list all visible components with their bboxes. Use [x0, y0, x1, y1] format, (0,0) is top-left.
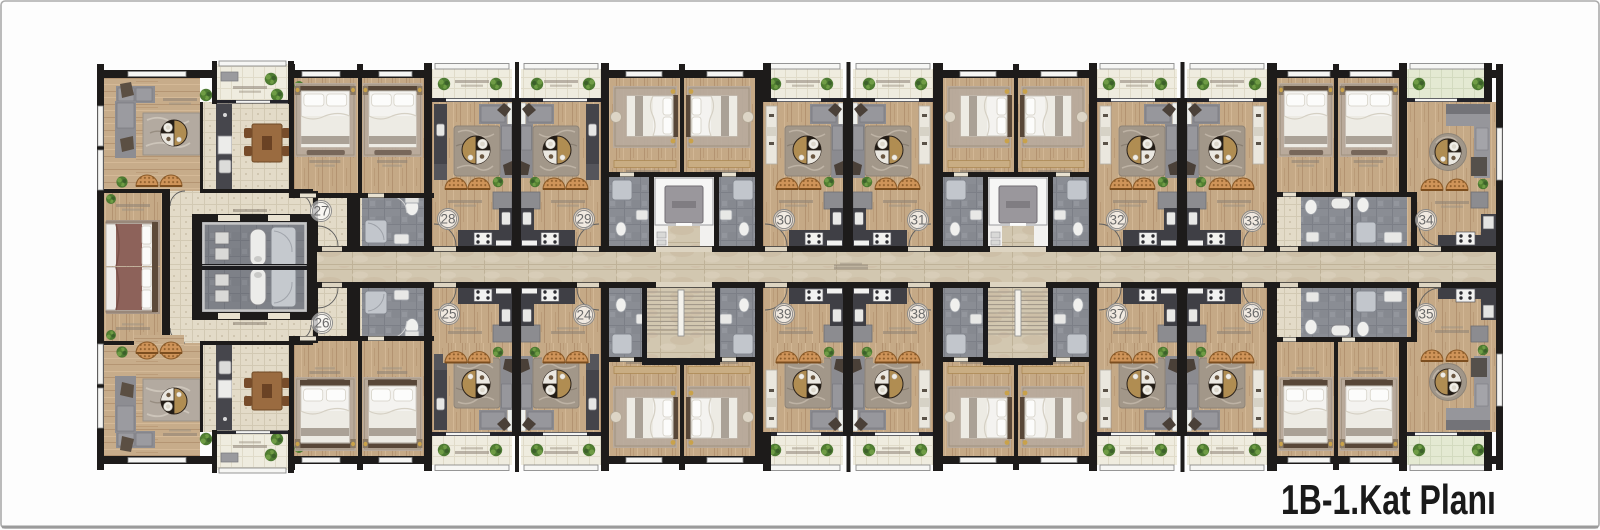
svg-text:26: 26: [314, 316, 329, 331]
svg-text:25: 25: [441, 307, 456, 322]
svg-text:30: 30: [776, 213, 791, 228]
svg-text:39: 39: [776, 307, 791, 322]
svg-text:1B-1.Kat Planı: 1B-1.Kat Planı: [1281, 476, 1496, 523]
svg-text:34: 34: [1418, 213, 1434, 228]
svg-text:31: 31: [910, 213, 925, 228]
svg-text:35: 35: [1418, 307, 1433, 322]
svg-text:37: 37: [1109, 307, 1124, 322]
svg-text:28: 28: [440, 212, 455, 227]
svg-text:36: 36: [1244, 306, 1259, 321]
svg-text:27: 27: [313, 204, 328, 219]
svg-text:29: 29: [576, 212, 591, 227]
svg-text:33: 33: [1244, 214, 1259, 229]
svg-text:32: 32: [1109, 213, 1124, 228]
svg-text:38: 38: [910, 307, 925, 322]
svg-text:24: 24: [576, 308, 592, 323]
